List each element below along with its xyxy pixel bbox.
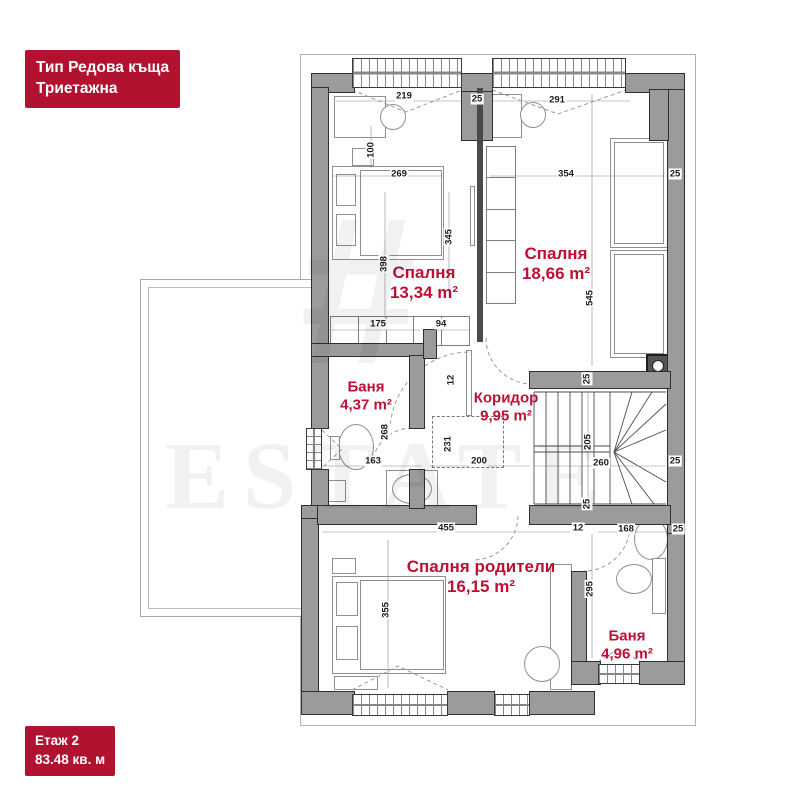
wall (530, 506, 670, 524)
room-area: 9,95 m² (474, 407, 539, 425)
window (306, 428, 322, 470)
room-area: 16,15 m² (407, 577, 556, 597)
plan-type-line2: Триетажна (36, 79, 169, 100)
dimension-label: 455 (437, 523, 455, 534)
dimension-label: 94 (435, 319, 448, 330)
wall (302, 692, 354, 714)
window (598, 664, 640, 684)
room-name: Баня (601, 627, 653, 645)
dimension-label: 260 (592, 458, 610, 469)
plan-type-badge: Тип Редова къща Триетажна (25, 50, 180, 108)
room-name: Баня (340, 378, 392, 396)
room-label: Коридор9,95 m² (474, 389, 539, 424)
room-name: Спалня (522, 244, 590, 264)
floor-area: 83.48 кв. м (35, 751, 105, 770)
room-name: Спалня (390, 263, 458, 283)
dimension-label: 398 (379, 255, 390, 273)
wall (410, 470, 424, 508)
wall (530, 372, 670, 388)
window (494, 694, 530, 716)
dimension-label: 12 (446, 374, 457, 387)
dimension-label: 355 (381, 601, 392, 619)
dimension-label: 219 (395, 91, 413, 102)
wall (318, 506, 476, 524)
room-area: 4,96 m² (601, 645, 653, 663)
dimension-label: 25 (672, 524, 685, 535)
dimension-label: 295 (585, 580, 596, 598)
dimension-label: 25 (669, 456, 682, 467)
wall (312, 88, 328, 346)
dimension-label: 25 (669, 169, 682, 180)
room-name: Коридор (474, 389, 539, 407)
room-name: Спалня родители (407, 557, 556, 577)
dimension-label: 100 (366, 141, 377, 159)
wall (410, 356, 424, 428)
dimension-label: 200 (470, 456, 488, 467)
window (352, 58, 462, 88)
room-label: Баня4,37 m² (340, 378, 392, 413)
dimension-label: 345 (444, 228, 455, 246)
dimension-label: 205 (583, 433, 594, 451)
room-area: 13,34 m² (390, 283, 458, 303)
dimension-label: 231 (443, 435, 454, 453)
partition-wall (477, 88, 483, 342)
room-area: 18,66 m² (522, 264, 590, 284)
floor-name: Етаж 2 (35, 732, 105, 751)
wall (640, 662, 684, 684)
floor-info-badge: Етаж 2 83.48 кв. м (25, 726, 115, 776)
window (352, 694, 448, 716)
floor-plan-page: Тип Редова къща Триетажна 21925291100269… (0, 0, 800, 800)
dimension-label: 25 (582, 498, 593, 511)
wall (448, 692, 494, 714)
wall (650, 90, 668, 140)
wall (572, 662, 600, 684)
room-label: Спалня18,66 m² (522, 244, 590, 284)
room-area: 4,37 m² (340, 396, 392, 414)
dimension-label: 12 (572, 523, 585, 534)
dimension-label: 268 (380, 423, 391, 441)
dimension-label: 163 (364, 456, 382, 467)
room-label: Спалня13,34 m² (390, 263, 458, 303)
dimension-label: 269 (390, 169, 408, 180)
wall (312, 344, 424, 356)
dimension-label: 545 (585, 289, 596, 307)
dimension-label: 354 (557, 169, 575, 180)
wall (312, 346, 328, 428)
dimension-label: 168 (617, 524, 635, 535)
room-label: Спалня родители16,15 m² (407, 557, 556, 597)
dimension-label: 175 (369, 319, 387, 330)
wall (530, 692, 594, 714)
plan-type-line1: Тип Редова къща (36, 58, 169, 79)
dimension-label: 25 (471, 94, 484, 105)
dimension-label: 291 (548, 95, 566, 106)
wall (424, 330, 436, 358)
wall (302, 514, 318, 706)
room-label: Баня4,96 m² (601, 627, 653, 662)
dimension-label: 25 (582, 373, 593, 386)
wall (668, 90, 684, 534)
window (492, 58, 626, 88)
